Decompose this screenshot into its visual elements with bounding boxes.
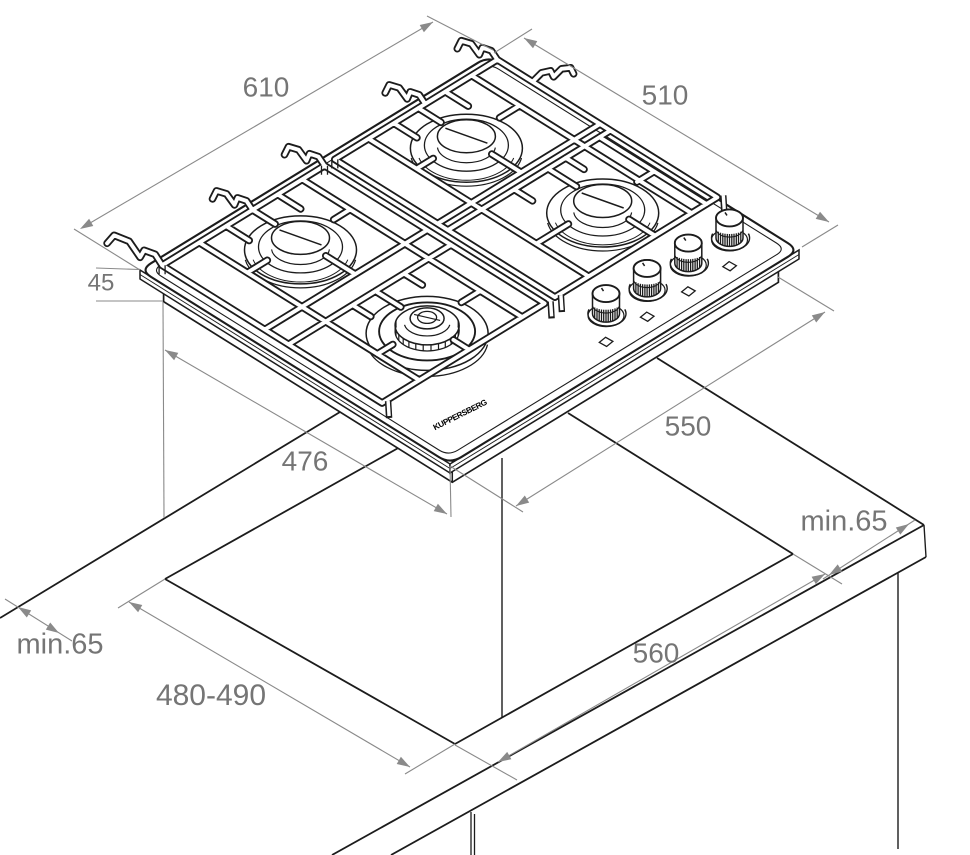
svg-text:45: 45	[88, 269, 115, 296]
svg-text:476: 476	[282, 445, 329, 476]
svg-text:610: 610	[243, 71, 290, 102]
svg-text:560: 560	[633, 637, 680, 668]
svg-text:min.65: min.65	[16, 629, 103, 661]
svg-text:510: 510	[642, 79, 689, 110]
svg-text:480-490: 480-490	[156, 679, 266, 712]
svg-text:550: 550	[665, 410, 712, 441]
svg-text:min.65: min.65	[800, 506, 887, 538]
